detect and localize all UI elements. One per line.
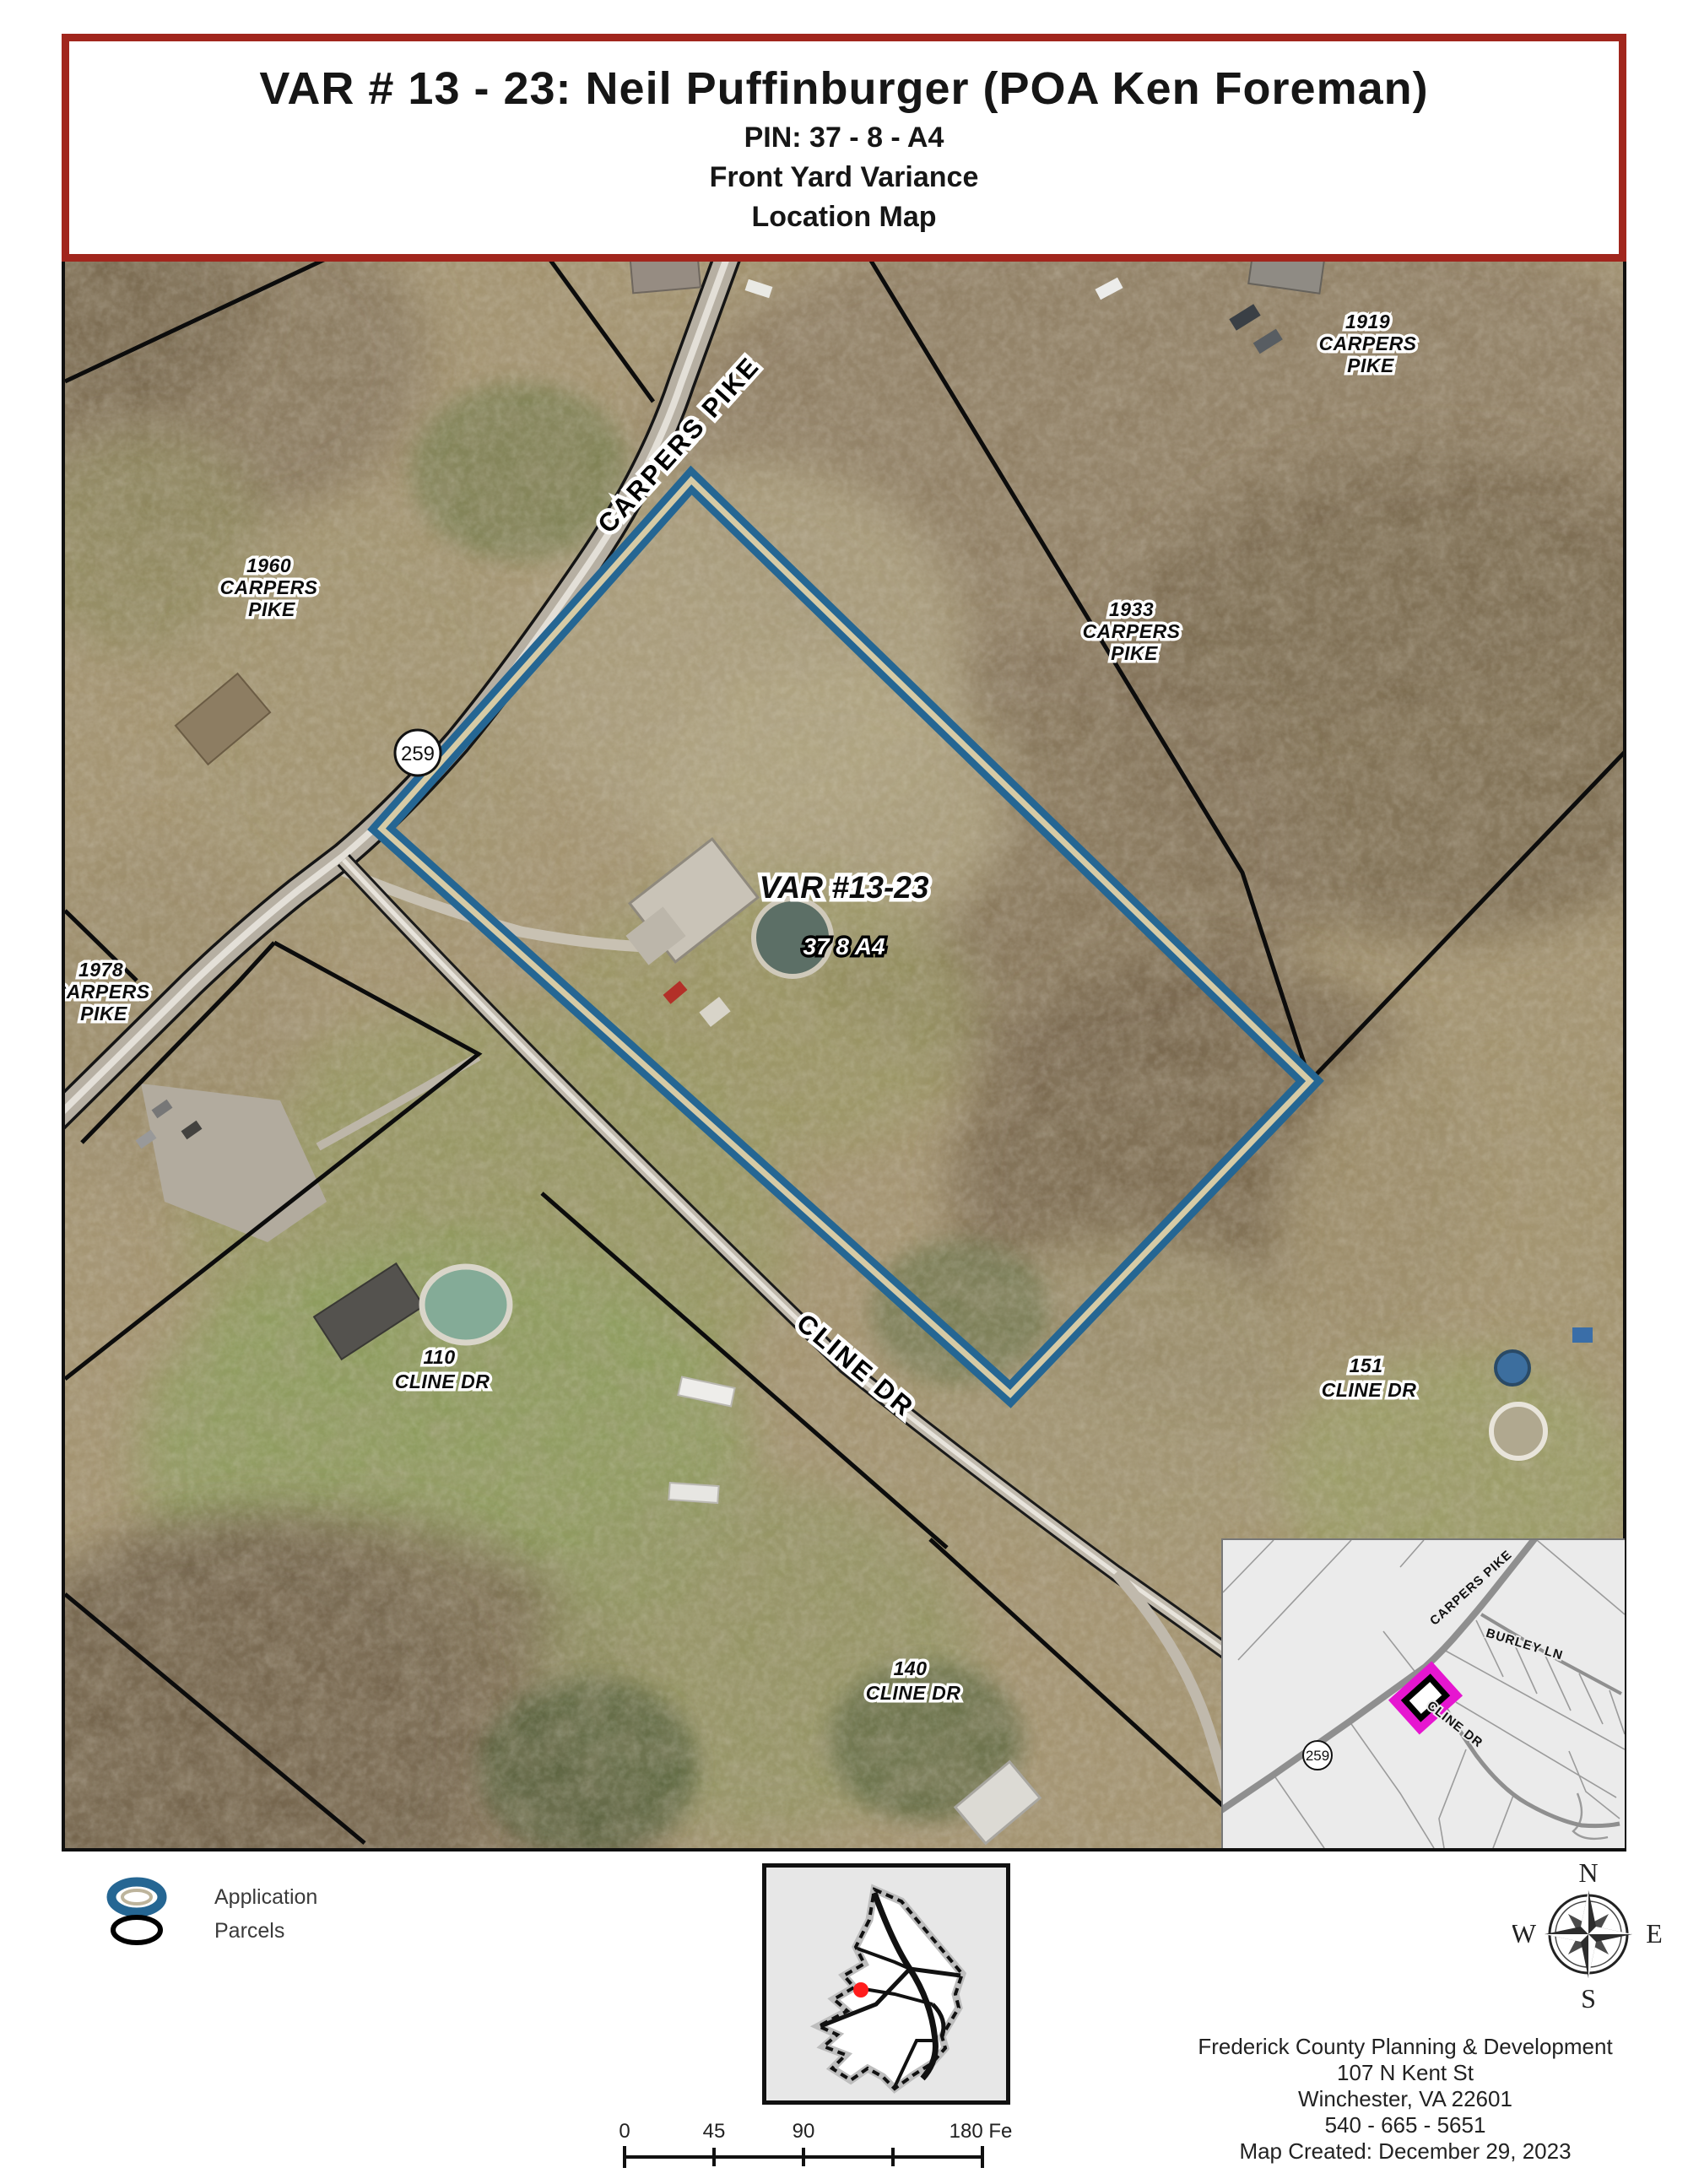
application-symbol-icon <box>100 1877 170 1917</box>
agency-street: 107 N Kent St <box>1182 2060 1629 2086</box>
compass-north-label: N <box>1578 1857 1598 1888</box>
legend-label-application: Application <box>214 1885 317 1910</box>
title-box: VAR # 13 - 23: Neil Puffinburger (POA Ke… <box>62 34 1626 262</box>
pool-151-small <box>1496 1351 1529 1385</box>
subject-case-label: VAR #13-23 <box>760 870 929 905</box>
legend: Application Parcels <box>100 1880 317 1948</box>
compass-west-label: W <box>1512 1918 1537 1949</box>
compass-rose: N E S W <box>1512 1855 1664 2011</box>
variance-type-subtitle: Front Yard Variance <box>710 161 979 194</box>
agency-phone: 540 - 665 - 5651 <box>1182 2112 1629 2138</box>
scale-bar: 0 45 90 180 Feet <box>608 2114 1013 2181</box>
map-type-subtitle: Location Map <box>751 201 936 234</box>
scale-tick-90: 90 <box>793 2120 815 2143</box>
scale-end-label: 180 Feet <box>949 2120 1013 2143</box>
subject-pin-label: 37 8 A4 <box>803 933 885 960</box>
agency-city: Winchester, VA 22601 <box>1182 2086 1629 2112</box>
legend-item-application: Application <box>100 1880 317 1914</box>
inset-route-badge-text: 259 <box>1306 1748 1329 1764</box>
legend-item-parcels: Parcels <box>100 1914 317 1948</box>
inset-map: 259 CARPERS PIKE BURLEY LN CLINE DR <box>1221 1538 1625 1848</box>
house-top-center <box>629 257 701 293</box>
inset-route-badge-259: 259 <box>1303 1741 1332 1770</box>
route-badge-259: 259 <box>395 730 441 776</box>
variance-location-map-page: VAR # 13 - 23: Neil Puffinburger (POA Ke… <box>0 0 1688 2184</box>
agency-name: Frederick County Planning & Development <box>1182 2034 1629 2060</box>
location-dot <box>853 1982 868 1997</box>
route-badge-259-text: 259 <box>401 743 435 765</box>
county-locator-box <box>762 1863 1010 2105</box>
page-title: VAR # 13 - 23: Neil Puffinburger (POA Ke… <box>259 62 1428 115</box>
pool-151-large <box>1491 1404 1545 1458</box>
blue-tarp <box>1572 1327 1593 1343</box>
scale-bar-line <box>625 2146 982 2168</box>
legend-label-parcels: Parcels <box>214 1919 284 1943</box>
parcels-symbol-icon <box>100 1913 170 1949</box>
map-created-date: Map Created: December 29, 2023 <box>1182 2138 1629 2165</box>
compass-south-label: S <box>1581 1983 1596 2011</box>
pin-subtitle: PIN: 37 - 8 - A4 <box>744 122 944 154</box>
scale-tick-0: 0 <box>619 2120 630 2143</box>
scale-tick-45: 45 <box>703 2120 726 2143</box>
agency-info-block: Frederick County Planning & Development … <box>1182 2034 1629 2165</box>
camper-b <box>668 1483 718 1503</box>
compass-east-label: E <box>1646 1918 1663 1949</box>
pool-110 <box>422 1267 510 1343</box>
